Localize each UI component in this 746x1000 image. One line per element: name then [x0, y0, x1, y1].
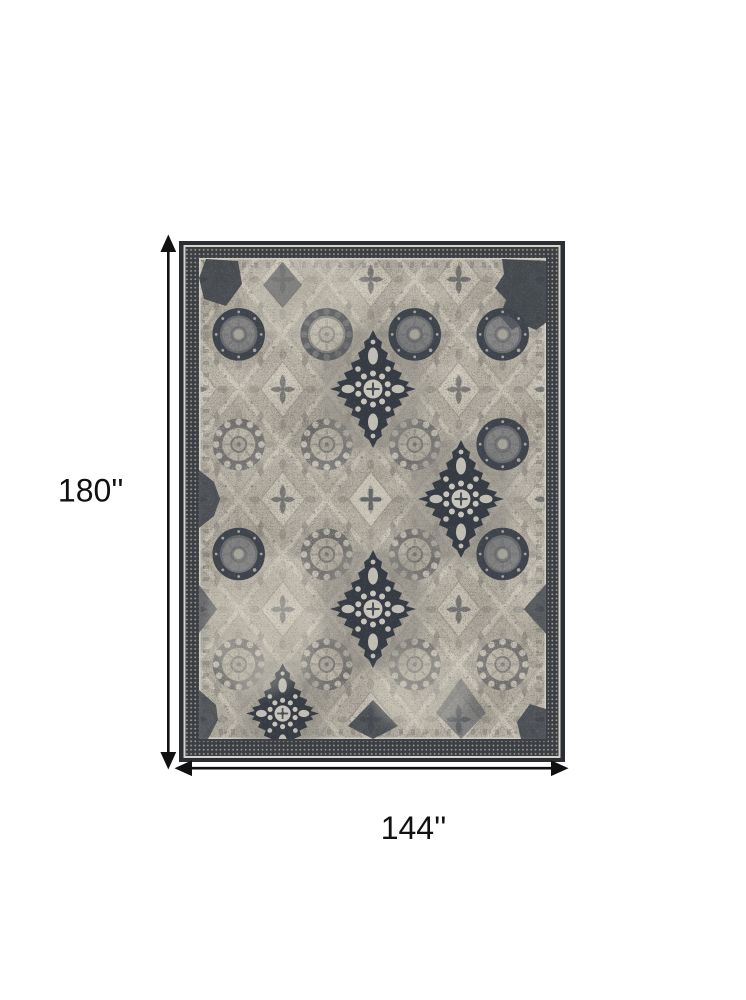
- svg-text:144'': 144'': [381, 810, 447, 846]
- svg-text:180'': 180'': [58, 473, 124, 509]
